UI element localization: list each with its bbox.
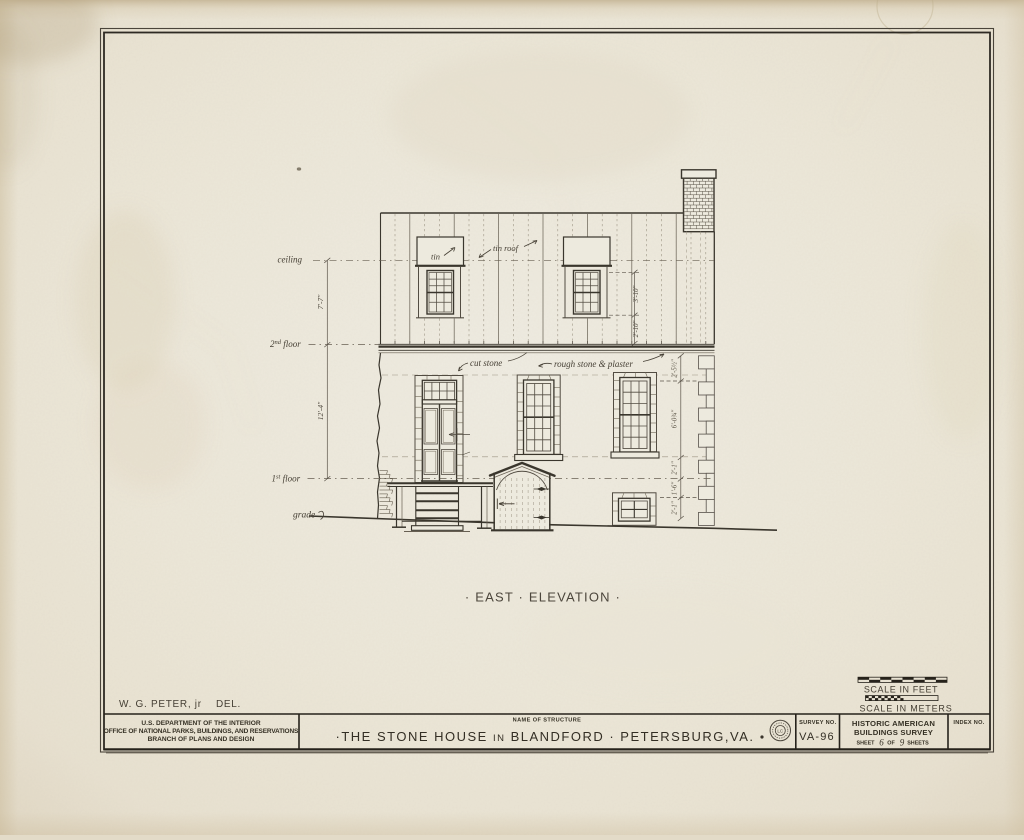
svg-text:2'-5½": 2'-5½" <box>672 359 679 378</box>
svg-text:3'-10": 3'-10" <box>633 285 640 303</box>
svg-text:cut stone: cut stone <box>470 358 502 368</box>
svg-text:1'-6": 1'-6" <box>672 482 679 496</box>
svg-text:NAME OF STRUCTURE: NAME OF STRUCTURE <box>513 718 582 724</box>
svg-text:OFFICE OF NATIONAL PARKS, BUIL: OFFICE OF NATIONAL PARKS, BUILDINGS, AND… <box>104 728 299 735</box>
svg-text:SCALE IN METERS: SCALE IN METERS <box>859 704 952 714</box>
svg-text:grade: grade <box>293 511 315 521</box>
svg-text:1st floor: 1st floor <box>272 473 301 483</box>
svg-text:SURVEY NO.: SURVEY NO. <box>799 720 836 726</box>
svg-text:2'-10": 2'-10" <box>633 320 640 337</box>
svg-text:6'-0¾": 6'-0¾" <box>672 410 679 429</box>
svg-text:VA-96: VA-96 <box>799 731 835 743</box>
svg-text:OF: OF <box>887 740 895 746</box>
svg-text:ceiling: ceiling <box>278 255 303 265</box>
svg-text:tin roof: tin roof <box>493 243 520 253</box>
svg-text:12'-4": 12'-4" <box>316 401 325 420</box>
svg-text:SCALE IN FEET: SCALE IN FEET <box>864 685 938 695</box>
svg-text:2'-1": 2'-1" <box>672 461 679 475</box>
svg-text:· EAST · ELEVATION ·: · EAST · ELEVATION · <box>465 590 621 605</box>
svg-text:W. G. PETER, jr: W. G. PETER, jr <box>119 699 202 710</box>
svg-text:SHEETS: SHEETS <box>907 740 929 746</box>
svg-text:7'-7": 7'-7" <box>316 294 325 310</box>
svg-text:BRANCH OF PLANS AND DESIGN: BRANCH OF PLANS AND DESIGN <box>148 736 255 743</box>
svg-text:·THE STONE HOUSE IN BLANDFORD: ·THE STONE HOUSE IN BLANDFORD · PETERSBU… <box>336 729 755 744</box>
svg-text:9: 9 <box>900 737 905 747</box>
svg-text:tin: tin <box>431 252 440 262</box>
svg-text:2'-1": 2'-1" <box>672 501 679 515</box>
svg-text:6: 6 <box>879 737 884 747</box>
svg-text:rough stone & plaster: rough stone & plaster <box>554 359 633 369</box>
svg-text:LC: LC <box>777 728 784 733</box>
svg-text:SHEET: SHEET <box>857 740 876 746</box>
svg-text:HISTORIC AMERICAN: HISTORIC AMERICAN <box>852 719 936 728</box>
svg-text:INDEX NO.: INDEX NO. <box>953 720 984 726</box>
svg-text:BUILDINGS SURVEY: BUILDINGS SURVEY <box>854 728 933 737</box>
svg-text:U.S. DEPARTMENT OF THE INTERIO: U.S. DEPARTMENT OF THE INTERIOR <box>141 720 261 727</box>
svg-text:DEL.: DEL. <box>216 699 241 710</box>
